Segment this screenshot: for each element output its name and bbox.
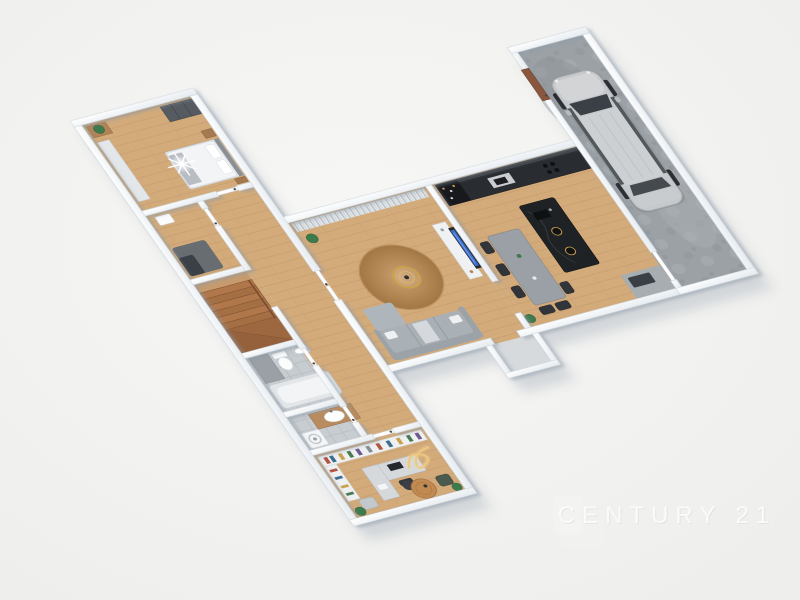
watermark-text: CENTURY 21 xyxy=(558,502,777,529)
floor-plan-svg: CENTURY 21 CENTURY 21 xyxy=(0,0,800,600)
floor-plan-render: CENTURY 21 CENTURY 21 xyxy=(0,0,800,600)
